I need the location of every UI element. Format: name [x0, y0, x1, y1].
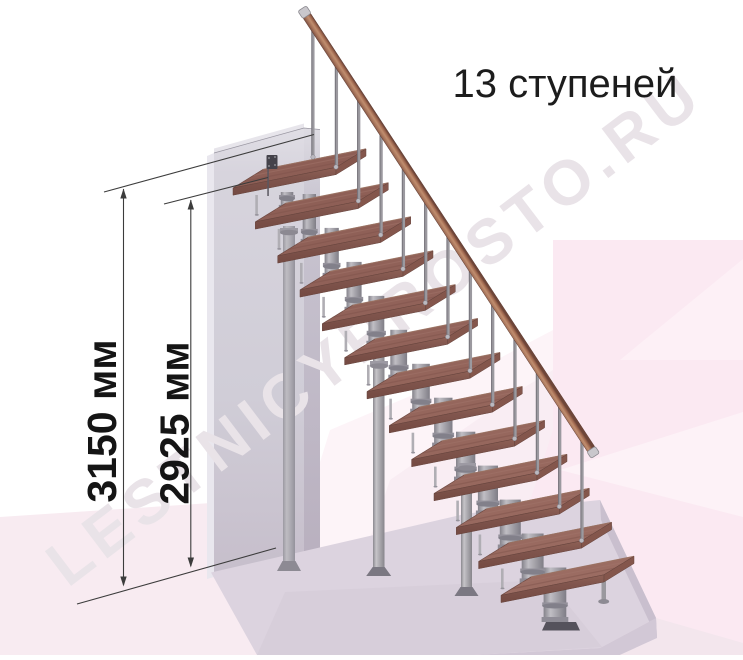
svg-text:13 ступеней: 13 ступеней — [453, 62, 678, 106]
svg-text:3150 мм: 3150 мм — [79, 339, 125, 502]
svg-text:2925 мм: 2925 мм — [152, 341, 198, 504]
